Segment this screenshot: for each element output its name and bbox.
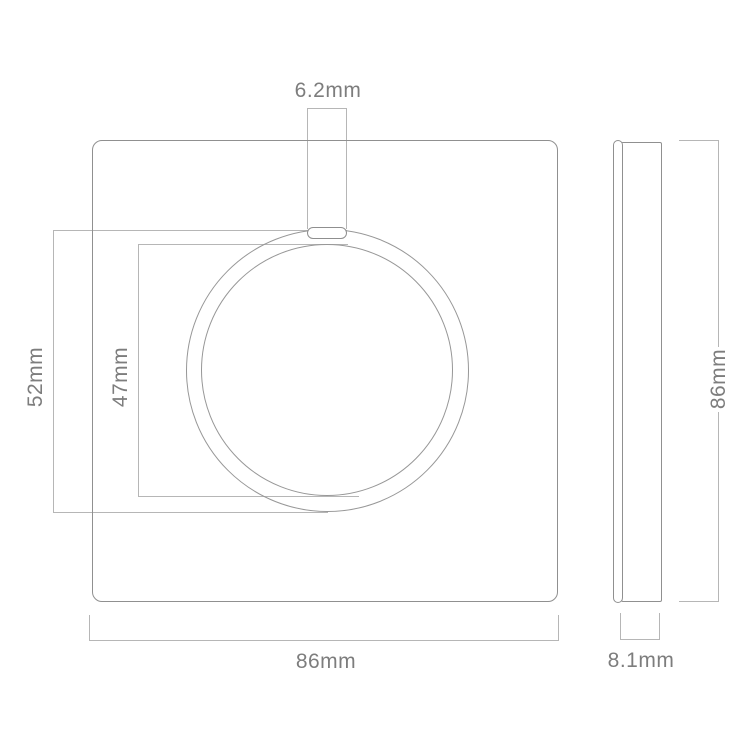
dim-86h-tick-bottom: [679, 601, 719, 602]
dim-86w-tick-left: [89, 615, 90, 641]
plate-width-label: 86mm: [296, 650, 356, 674]
dim-6-2-crossbar: [307, 108, 347, 109]
side-thickness-label: 8.1mm: [608, 649, 675, 673]
side-profile-body: [621, 142, 662, 602]
dim-86h-line-upper: [718, 140, 719, 347]
side-profile-front-edge: [613, 140, 623, 603]
dim-86w-line: [89, 640, 559, 641]
indicator-notch: [307, 227, 347, 239]
dim-86w-tick-right: [558, 615, 559, 641]
inner-diameter-label: 47mm: [109, 347, 133, 407]
dim-8-1-tick-left: [620, 613, 621, 640]
notch-width-label: 6.2mm: [295, 79, 362, 103]
dial-inner-circle: [201, 244, 453, 496]
dim-86h-line-lower: [718, 412, 719, 602]
dim-8-1-tick-right: [659, 613, 660, 640]
dim-8-1-line: [620, 639, 660, 640]
side-height-label: 86mm: [707, 349, 731, 409]
dim-86h-tick-top: [679, 140, 719, 141]
dimension-diagram: 6.2mm 52mm 47mm 86mm 86mm 8.1mm: [0, 0, 750, 750]
dim-52-extension-left: [53, 230, 54, 513]
outer-diameter-label: 52mm: [24, 347, 48, 407]
